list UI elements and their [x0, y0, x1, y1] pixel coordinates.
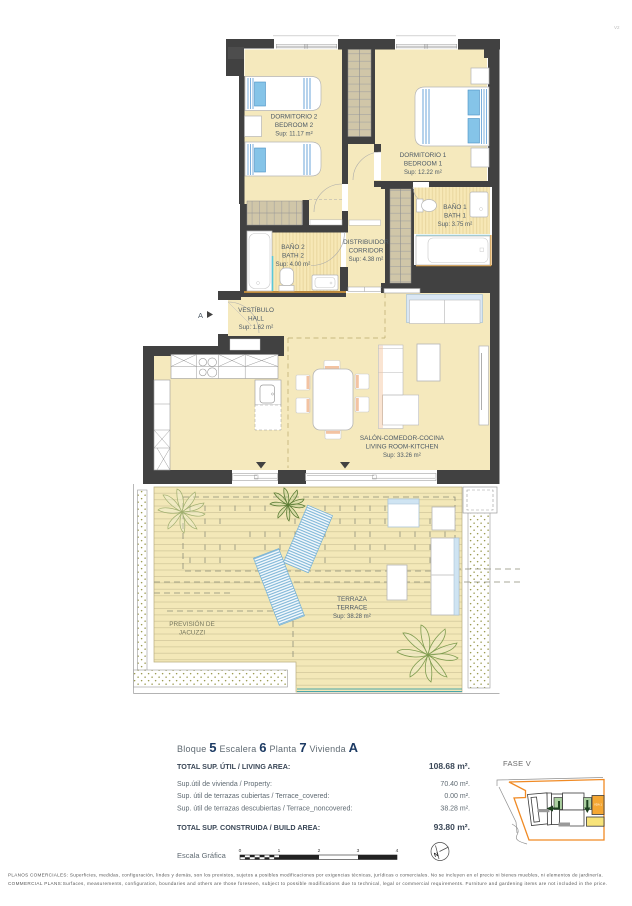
- svg-text:Sup: 12.22 m2: Sup: 12.22 m2: [404, 169, 443, 177]
- svg-text:Sup: 4.00 m2: Sup: 4.00 m2: [276, 261, 311, 269]
- svg-text:BAÑO 1: BAÑO 1: [443, 202, 467, 211]
- svg-text:BEDROOM 1: BEDROOM 1: [404, 161, 443, 168]
- svg-text:SALÓN-COMEDOR-COCINA: SALÓN-COMEDOR-COCINA: [360, 433, 445, 442]
- svg-text:TERRACE: TERRACE: [337, 605, 368, 612]
- svg-text:LIVING ROOM-KITCHEN: LIVING ROOM-KITCHEN: [366, 444, 439, 451]
- svg-text:Escala Gráfica: Escala Gráfica: [177, 851, 227, 860]
- svg-text:Sup: 38.28 m2: Sup: 38.28 m2: [333, 613, 372, 621]
- svg-text:3: 3: [357, 848, 360, 854]
- svg-text:BAÑO 2: BAÑO 2: [281, 242, 305, 251]
- svg-text:N: N: [433, 852, 439, 859]
- svg-text:V2: V2: [614, 25, 620, 30]
- svg-text:TOTAL SUP. ÚTIL / LIVING AREA:: TOTAL SUP. ÚTIL / LIVING AREA:: [177, 762, 290, 771]
- svg-text:Sup: 11.17 m2: Sup: 11.17 m2: [275, 130, 313, 138]
- svg-text:Sup: 4.38 m2: Sup: 4.38 m2: [349, 256, 384, 264]
- svg-text:VESTÍBULO: VESTÍBULO: [238, 305, 274, 314]
- svg-text:TOTAL SUP. CONSTRUIDA / BUILD: TOTAL SUP. CONSTRUIDA / BUILD AREA:: [177, 823, 320, 832]
- svg-text:4: 4: [396, 848, 399, 854]
- svg-text:Sup.útil de vivienda / Propert: Sup.útil de vivienda / Property:: [177, 781, 272, 788]
- svg-text:38.28 m².: 38.28 m².: [440, 806, 470, 813]
- svg-text:VDA 1: VDA 1: [594, 803, 602, 807]
- svg-text:PLANOS COMERCIALES: Superficie: PLANOS COMERCIALES: Superficies, medidas…: [8, 873, 603, 878]
- svg-text:DISTRIBUIDOR: DISTRIBUIDOR: [343, 239, 389, 246]
- svg-text:93.80 m².: 93.80 m².: [434, 822, 470, 832]
- svg-text:BATH 2: BATH 2: [282, 253, 304, 260]
- svg-text:PREVISIÓN DE: PREVISIÓN DE: [169, 619, 214, 628]
- svg-text:1: 1: [278, 848, 281, 854]
- svg-text:70.40 m².: 70.40 m².: [440, 781, 470, 788]
- svg-text:Sup. útil de terrazas descubie: Sup. útil de terrazas descubiertas / Ter…: [177, 806, 352, 813]
- svg-text:BATH 1: BATH 1: [444, 213, 466, 220]
- svg-text:Bloque 5 Escalera 6 Planta 7 V: Bloque 5 Escalera 6 Planta 7 Vivienda A: [177, 740, 359, 755]
- svg-text:CORRIDOR: CORRIDOR: [349, 248, 384, 255]
- svg-text:JACUZZI: JACUZZI: [179, 630, 205, 637]
- svg-text:TERRAZA: TERRAZA: [337, 596, 368, 603]
- svg-text:DORMITORIO 2: DORMITORIO 2: [271, 114, 318, 121]
- svg-text:FASE V: FASE V: [503, 759, 531, 768]
- svg-text:108.68 m².: 108.68 m².: [429, 761, 470, 771]
- svg-text:Sup: 3.75 m2: Sup: 3.75 m2: [438, 221, 473, 229]
- svg-text:2: 2: [318, 848, 321, 854]
- svg-text:0.00 m².: 0.00 m².: [444, 793, 470, 800]
- svg-text:Sup. útil de terrazas cubierta: Sup. útil de terrazas cubiertas / Terrac…: [177, 793, 329, 800]
- svg-text:DORMITORIO 1: DORMITORIO 1: [400, 152, 447, 159]
- svg-text:0: 0: [239, 848, 242, 854]
- svg-text:COMMERCIAL PLANS:Surfaces, mea: COMMERCIAL PLANS:Surfaces, measurements,…: [8, 881, 607, 886]
- svg-text:A: A: [198, 311, 203, 320]
- svg-text:BEDROOM 2: BEDROOM 2: [275, 122, 314, 129]
- svg-text:HALL: HALL: [248, 316, 264, 323]
- svg-text:Sup: 33.26 m2: Sup: 33.26 m2: [383, 452, 422, 460]
- svg-text:Sup: 1.62 m2: Sup: 1.62 m2: [239, 324, 274, 332]
